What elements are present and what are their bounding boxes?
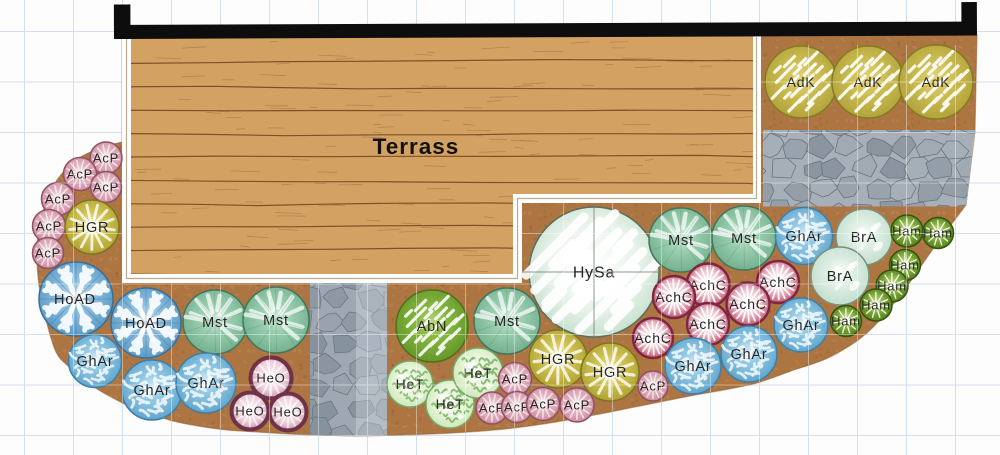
svg-text:AbN: AbN <box>417 319 448 335</box>
svg-text:Mst: Mst <box>494 314 520 330</box>
svg-text:HoAD: HoAD <box>54 292 96 308</box>
svg-text:HGR: HGR <box>541 352 576 368</box>
svg-text:GhAr: GhAr <box>782 318 819 334</box>
svg-text:AcP: AcP <box>45 192 71 207</box>
svg-text:GhAr: GhAr <box>76 354 113 370</box>
svg-text:BrA: BrA <box>827 269 854 285</box>
svg-text:AchC: AchC <box>689 316 726 332</box>
svg-text:AchC: AchC <box>729 296 766 312</box>
svg-text:AchC: AchC <box>759 274 796 290</box>
svg-text:AcP: AcP <box>36 219 62 234</box>
svg-text:Ham: Ham <box>861 298 891 313</box>
svg-text:GhAr: GhAr <box>785 229 822 245</box>
svg-text:AcP: AcP <box>35 246 61 261</box>
svg-text:HeT: HeT <box>464 365 493 381</box>
svg-text:AcP: AcP <box>93 151 119 166</box>
svg-text:HeO: HeO <box>256 371 285 386</box>
svg-text:Mst: Mst <box>263 313 289 329</box>
svg-text:Ham: Ham <box>831 314 861 329</box>
svg-text:HeT: HeT <box>436 396 465 412</box>
svg-text:AcP: AcP <box>640 379 666 394</box>
svg-text:AcP: AcP <box>67 167 93 182</box>
svg-text:HeT: HeT <box>396 376 425 392</box>
svg-text:AchC: AchC <box>655 289 692 305</box>
svg-text:Mst: Mst <box>668 233 694 249</box>
svg-text:AcP: AcP <box>93 180 119 195</box>
svg-text:GhAr: GhAr <box>674 359 711 375</box>
svg-text:Mst: Mst <box>202 315 228 331</box>
svg-text:GhAr: GhAr <box>730 347 767 363</box>
svg-text:AchC: AchC <box>634 330 671 346</box>
svg-text:Terrass: Terrass <box>373 134 460 159</box>
svg-text:HGR: HGR <box>593 365 628 381</box>
svg-text:HeO: HeO <box>235 404 264 419</box>
svg-text:HeO: HeO <box>273 405 302 420</box>
svg-text:BrA: BrA <box>851 230 878 246</box>
svg-text:GhAr: GhAr <box>187 376 224 392</box>
svg-text:HySa: HySa <box>573 265 615 282</box>
svg-text:AcP: AcP <box>530 397 556 412</box>
svg-text:AcP: AcP <box>564 398 590 413</box>
svg-text:HoAD: HoAD <box>125 316 167 332</box>
